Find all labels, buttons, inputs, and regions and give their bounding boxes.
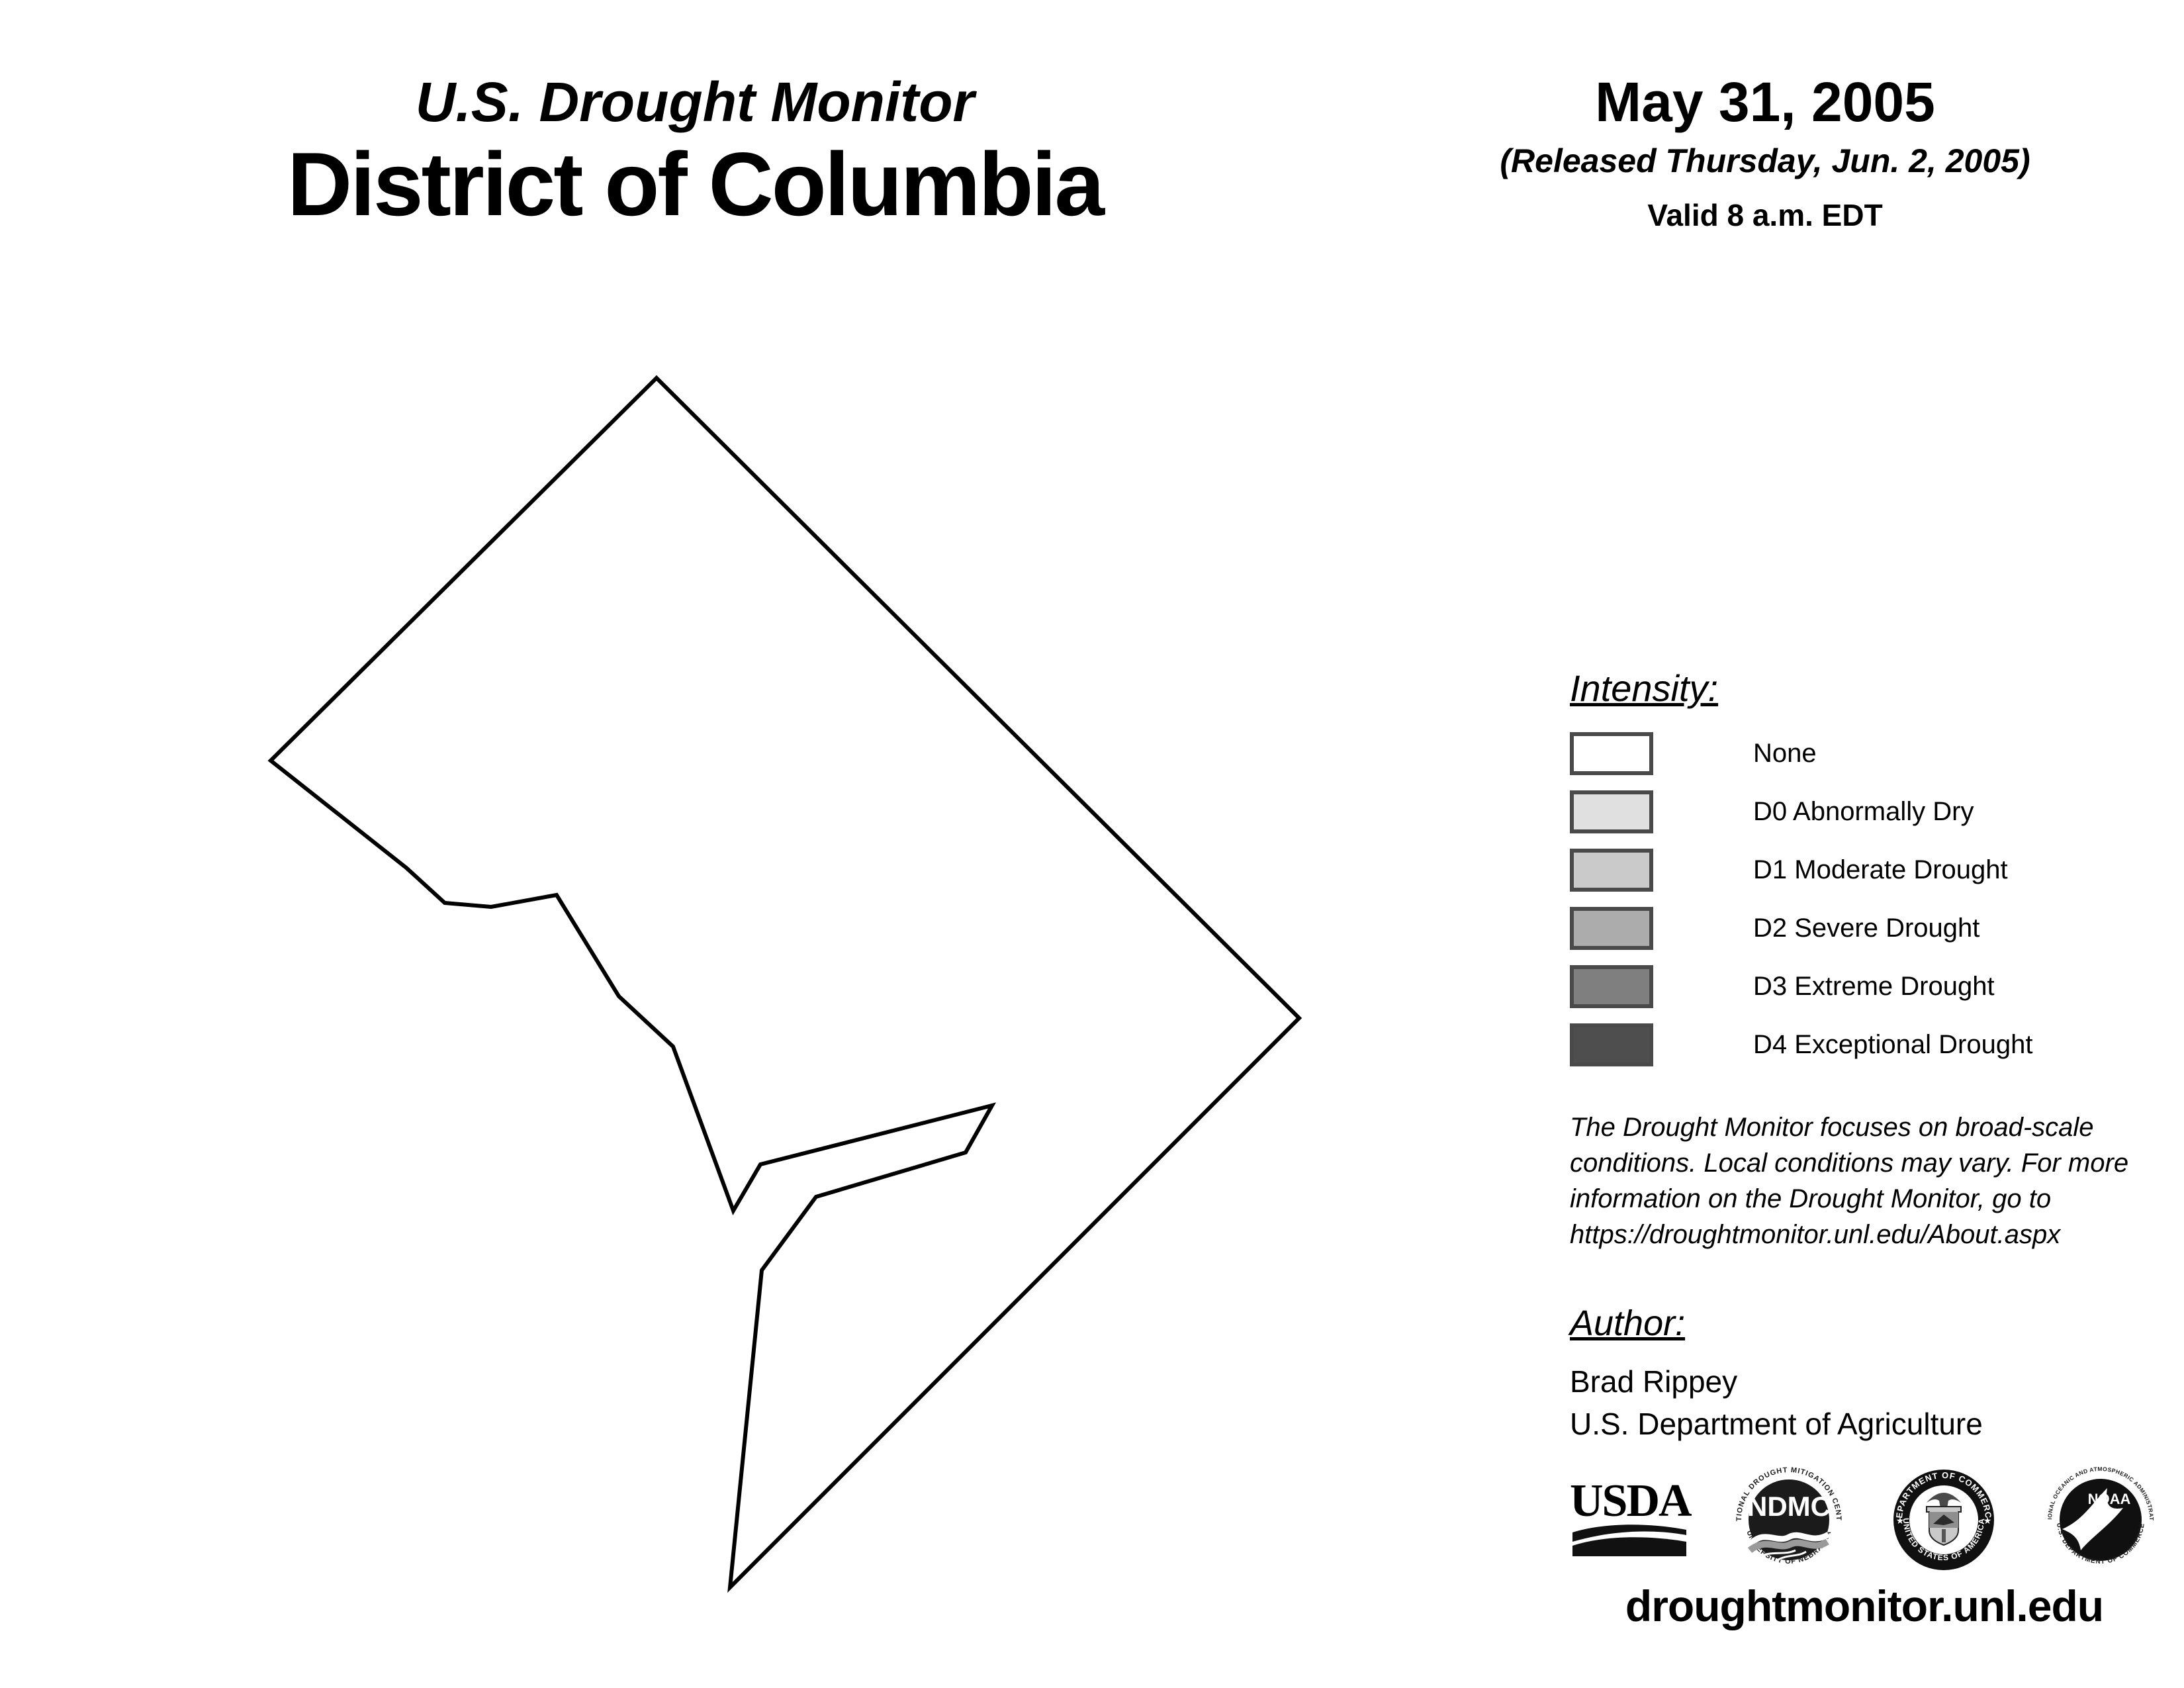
swatch-d4 [1570, 1023, 1653, 1066]
agency-logo-row: USDA NATIONAL DROUGHT MITIGATION CENTER … [1570, 1462, 2159, 1577]
usda-logo: USDA [1570, 1480, 1689, 1560]
legend-heading: Intensity: [1570, 670, 2165, 707]
dc-boundary-outline [271, 378, 1299, 1587]
legend-label: D2 Severe Drought [1753, 914, 1979, 943]
legend-label: D3 Extreme Drought [1753, 972, 1995, 1002]
noaa-logo: NATIONAL OCEANIC AND ATMOSPHERIC ADMINIS… [2042, 1462, 2159, 1578]
intensity-legend: Intensity: None D0 Abnormally Dry D1 Mod… [1570, 670, 2165, 1082]
swatch-d2 [1570, 907, 1653, 950]
noaa-wordmark: NOAA [2088, 1491, 2131, 1507]
doc-seal: DEPARTMENT OF COMMERCE UNITED STATES OF … [1888, 1464, 1999, 1575]
ndmc-logo: NATIONAL DROUGHT MITIGATION CENTER UNIVE… [1732, 1463, 1846, 1577]
legend-label: D4 Exceptional Drought [1753, 1030, 2032, 1060]
legend-label: D1 Moderate Drought [1753, 855, 2008, 885]
legend-row-d4: D4 Exceptional Drought [1570, 1023, 2165, 1066]
swatch-d0 [1570, 790, 1653, 833]
swatch-d1 [1570, 849, 1653, 892]
report-title: U.S. Drought Monitor [199, 74, 1191, 130]
author-block: Author: Brad Rippey U.S. Department of A… [1570, 1305, 1983, 1439]
region-title: District of Columbia [199, 139, 1191, 229]
legend-row-none: None [1570, 732, 2165, 775]
disclaimer-text: The Drought Monitor focuses on broad-sca… [1570, 1109, 2184, 1252]
author-name: Brad Rippey [1570, 1366, 1983, 1397]
legend-row-d1: D1 Moderate Drought [1570, 849, 2165, 892]
usda-swoosh-icon [1570, 1522, 1689, 1556]
release-date: (Released Thursday, Jun. 2, 2005) [1456, 144, 2074, 177]
valid-time: Valid 8 a.m. EDT [1456, 200, 2074, 230]
doc-star-right: ★ [1983, 1515, 1992, 1526]
website-url: droughtmonitor.unl.edu [1570, 1581, 2159, 1631]
legend-label: None [1753, 739, 1817, 769]
usda-wordmark: USDA [1570, 1480, 1689, 1522]
legend-row-d0: D0 Abnormally Dry [1570, 790, 2165, 833]
legend-label: D0 Abnormally Dry [1753, 797, 1974, 827]
title-block: U.S. Drought Monitor District of Columbi… [199, 74, 1191, 229]
date-block: May 31, 2005 (Released Thursday, Jun. 2,… [1456, 74, 2074, 230]
map-date: May 31, 2005 [1456, 74, 2074, 130]
swatch-none [1570, 732, 1653, 775]
author-heading: Author: [1570, 1305, 1983, 1341]
ndmc-wordmark: NDMC [1747, 1491, 1831, 1522]
author-org: U.S. Department of Agriculture [1570, 1409, 1983, 1439]
legend-row-d3: D3 Extreme Drought [1570, 965, 2165, 1008]
swatch-d3 [1570, 965, 1653, 1008]
doc-star-left: ★ [1896, 1515, 1905, 1526]
legend-items: None D0 Abnormally Dry D1 Moderate Droug… [1570, 732, 2165, 1066]
legend-row-d2: D2 Severe Drought [1570, 907, 2165, 950]
